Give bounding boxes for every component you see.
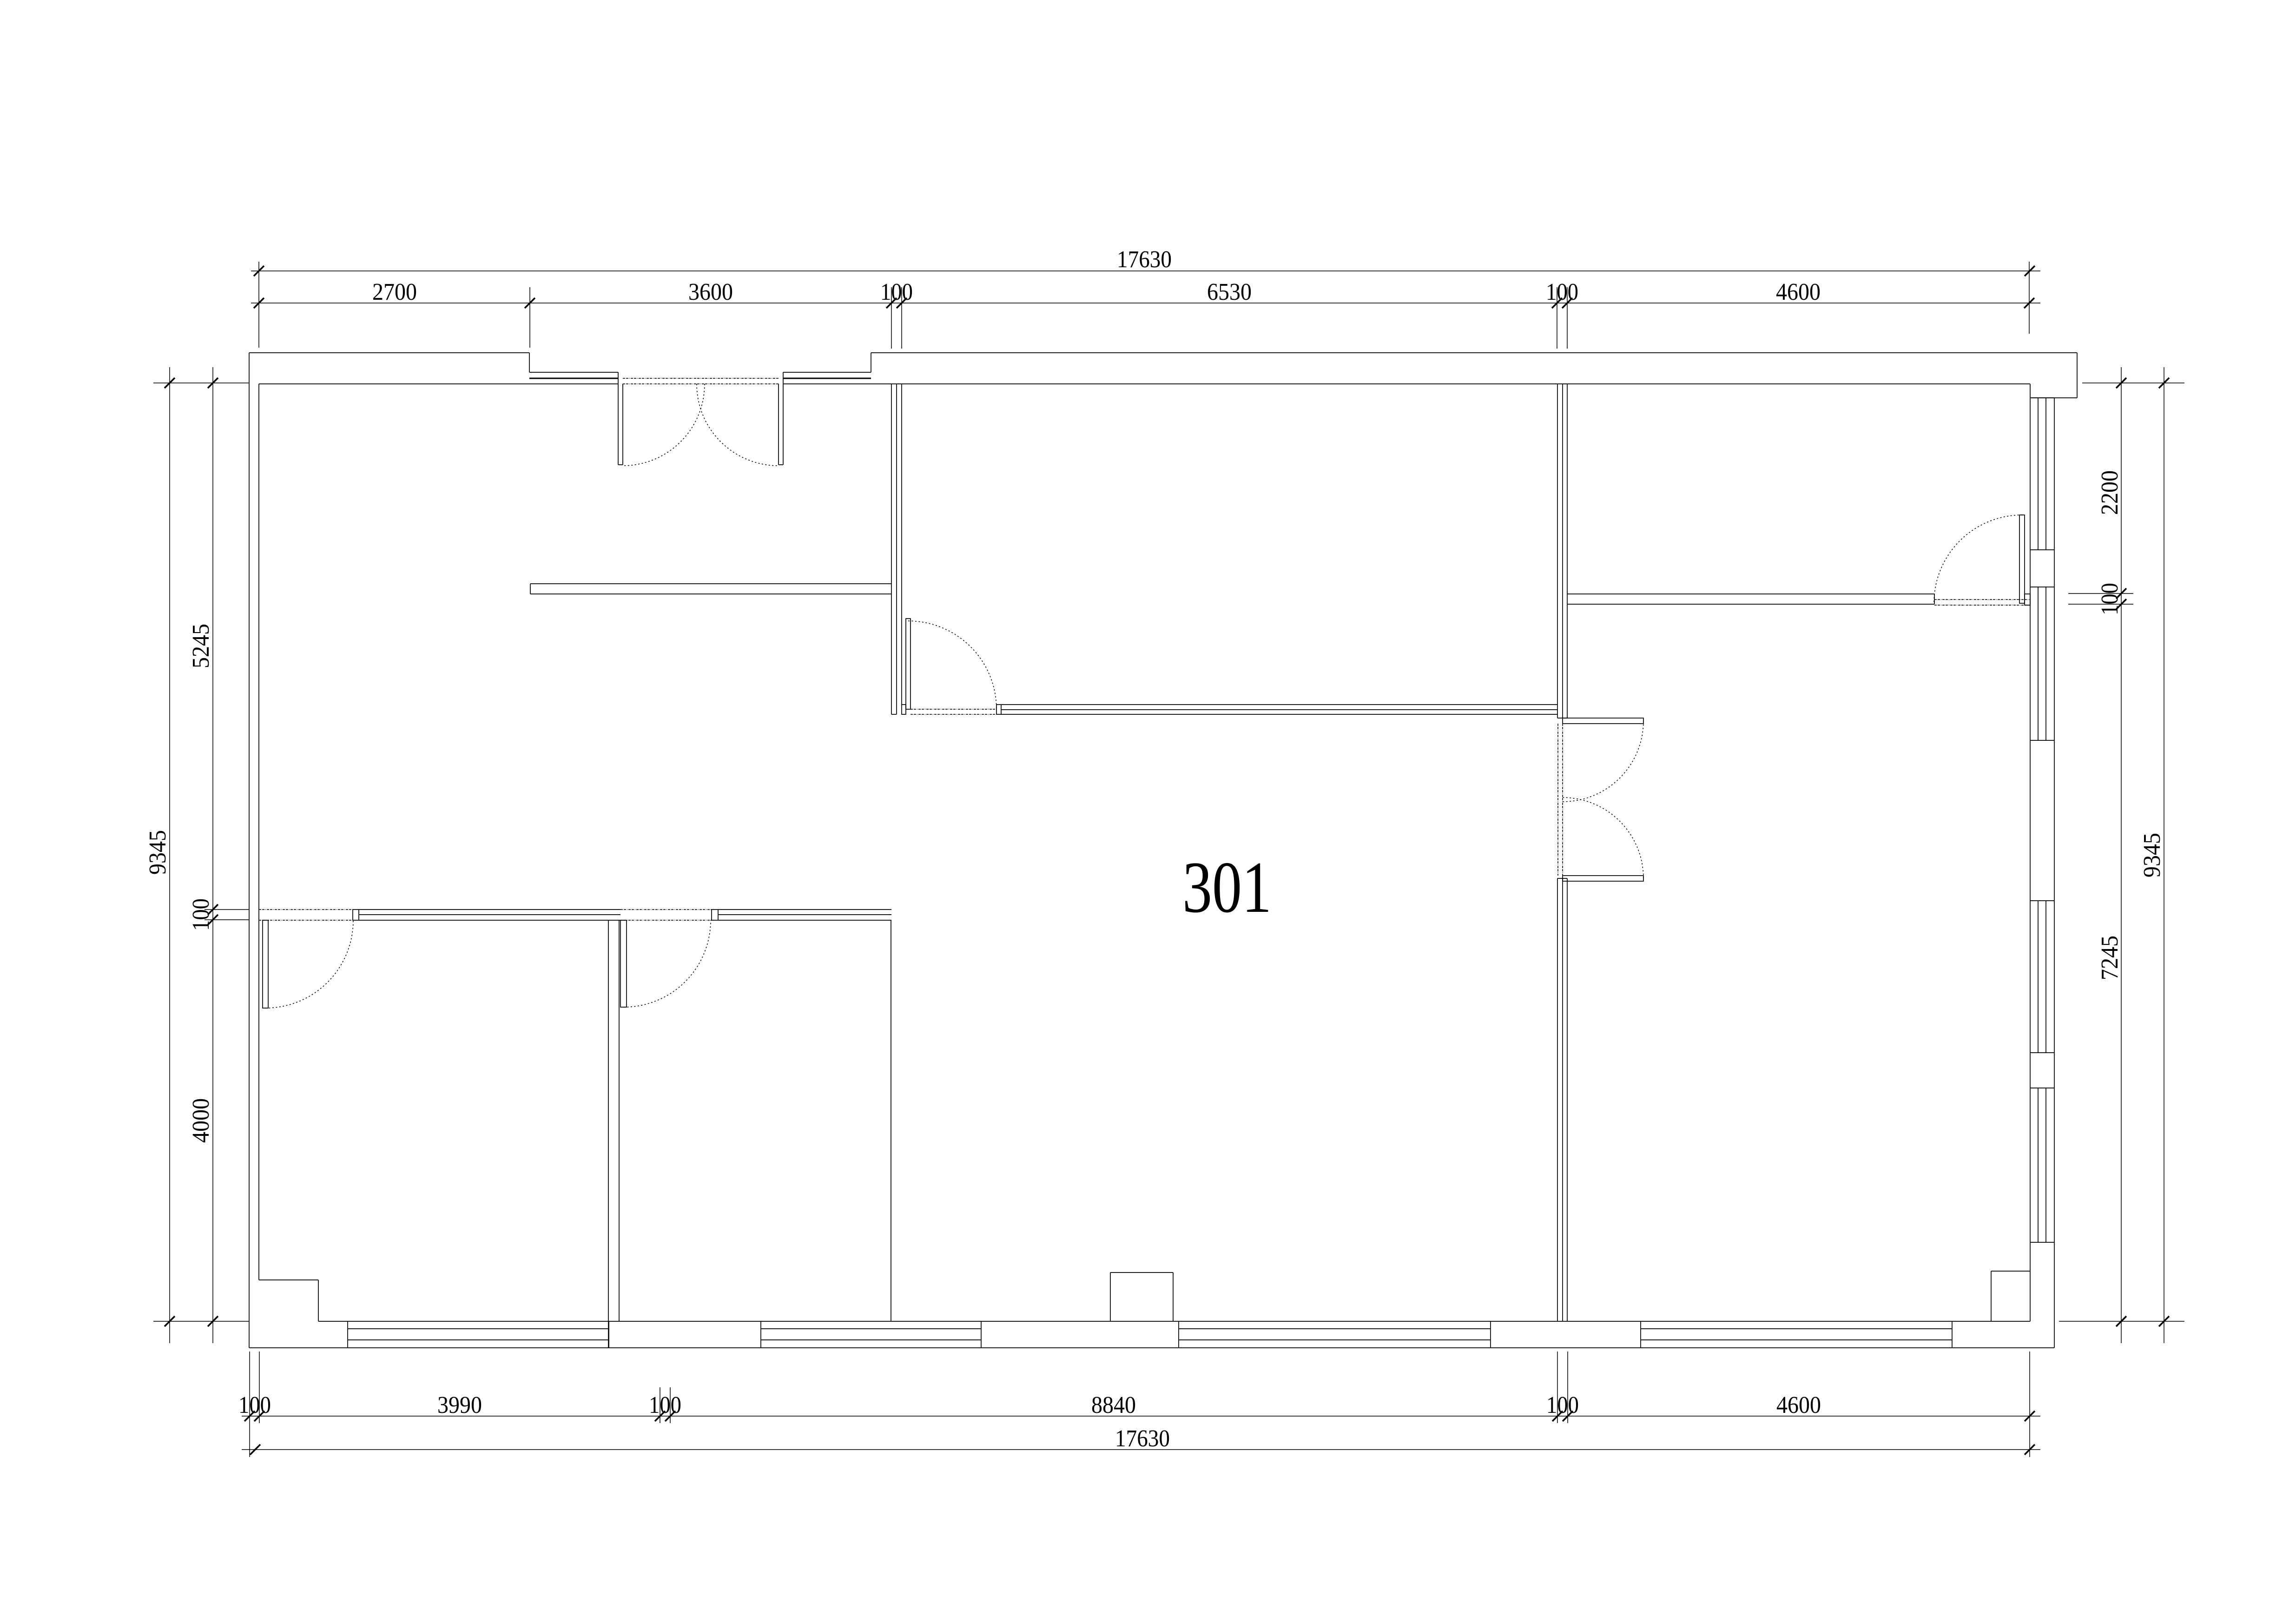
svg-text:4600: 4600: [1776, 279, 1821, 305]
svg-text:6530: 6530: [1207, 279, 1252, 305]
svg-text:4600: 4600: [1776, 1392, 1821, 1418]
svg-text:17630: 17630: [1115, 1425, 1170, 1452]
svg-text:17630: 17630: [1117, 246, 1172, 273]
svg-text:100: 100: [1546, 1392, 1579, 1418]
svg-text:2700: 2700: [372, 279, 417, 305]
svg-text:3990: 3990: [437, 1392, 482, 1418]
svg-text:100: 100: [649, 1392, 681, 1418]
svg-text:100: 100: [238, 1392, 271, 1418]
svg-text:301: 301: [1182, 847, 1272, 928]
svg-text:3600: 3600: [688, 279, 733, 305]
svg-text:9345: 9345: [2139, 833, 2165, 877]
svg-text:7245: 7245: [2097, 936, 2123, 980]
svg-text:4000: 4000: [188, 1098, 214, 1143]
svg-text:100: 100: [1546, 279, 1578, 305]
svg-text:2200: 2200: [2097, 470, 2123, 515]
svg-text:100: 100: [188, 898, 214, 931]
svg-text:100: 100: [880, 279, 913, 305]
svg-text:100: 100: [2097, 583, 2123, 615]
svg-text:9345: 9345: [145, 830, 171, 875]
svg-text:5245: 5245: [188, 624, 214, 668]
svg-text:8840: 8840: [1091, 1392, 1136, 1418]
